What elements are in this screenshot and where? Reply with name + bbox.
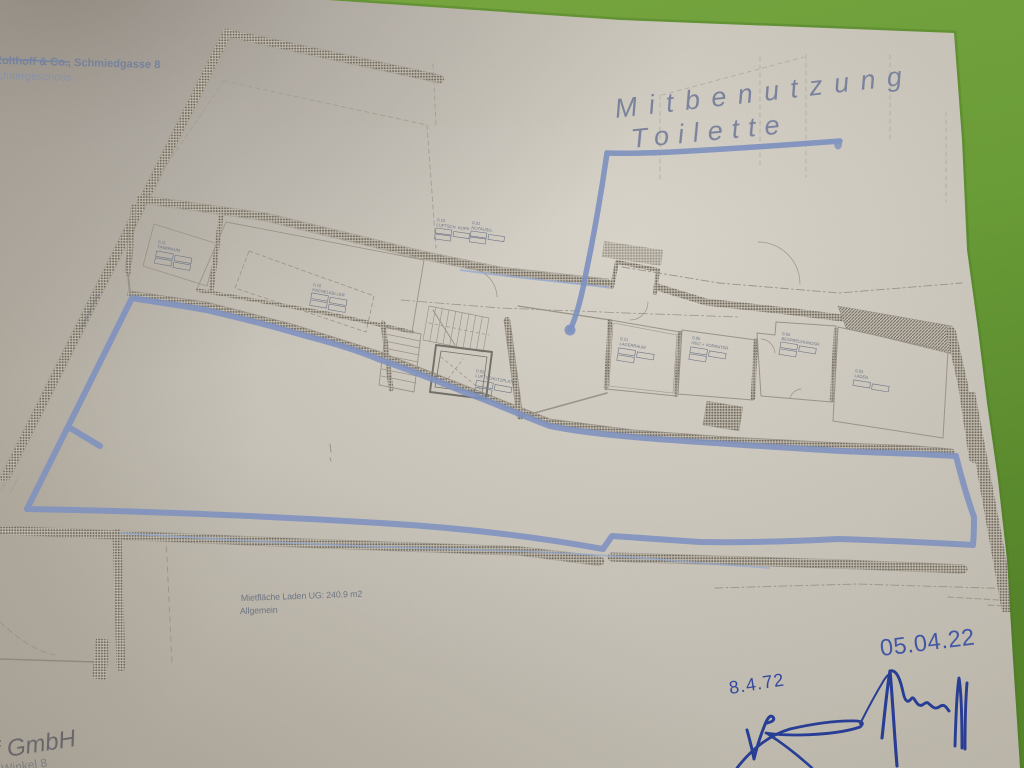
svg-text:Untergeschoss: Untergeschoss [0, 70, 72, 84]
svg-text:Allgemein: Allgemein [240, 605, 278, 616]
